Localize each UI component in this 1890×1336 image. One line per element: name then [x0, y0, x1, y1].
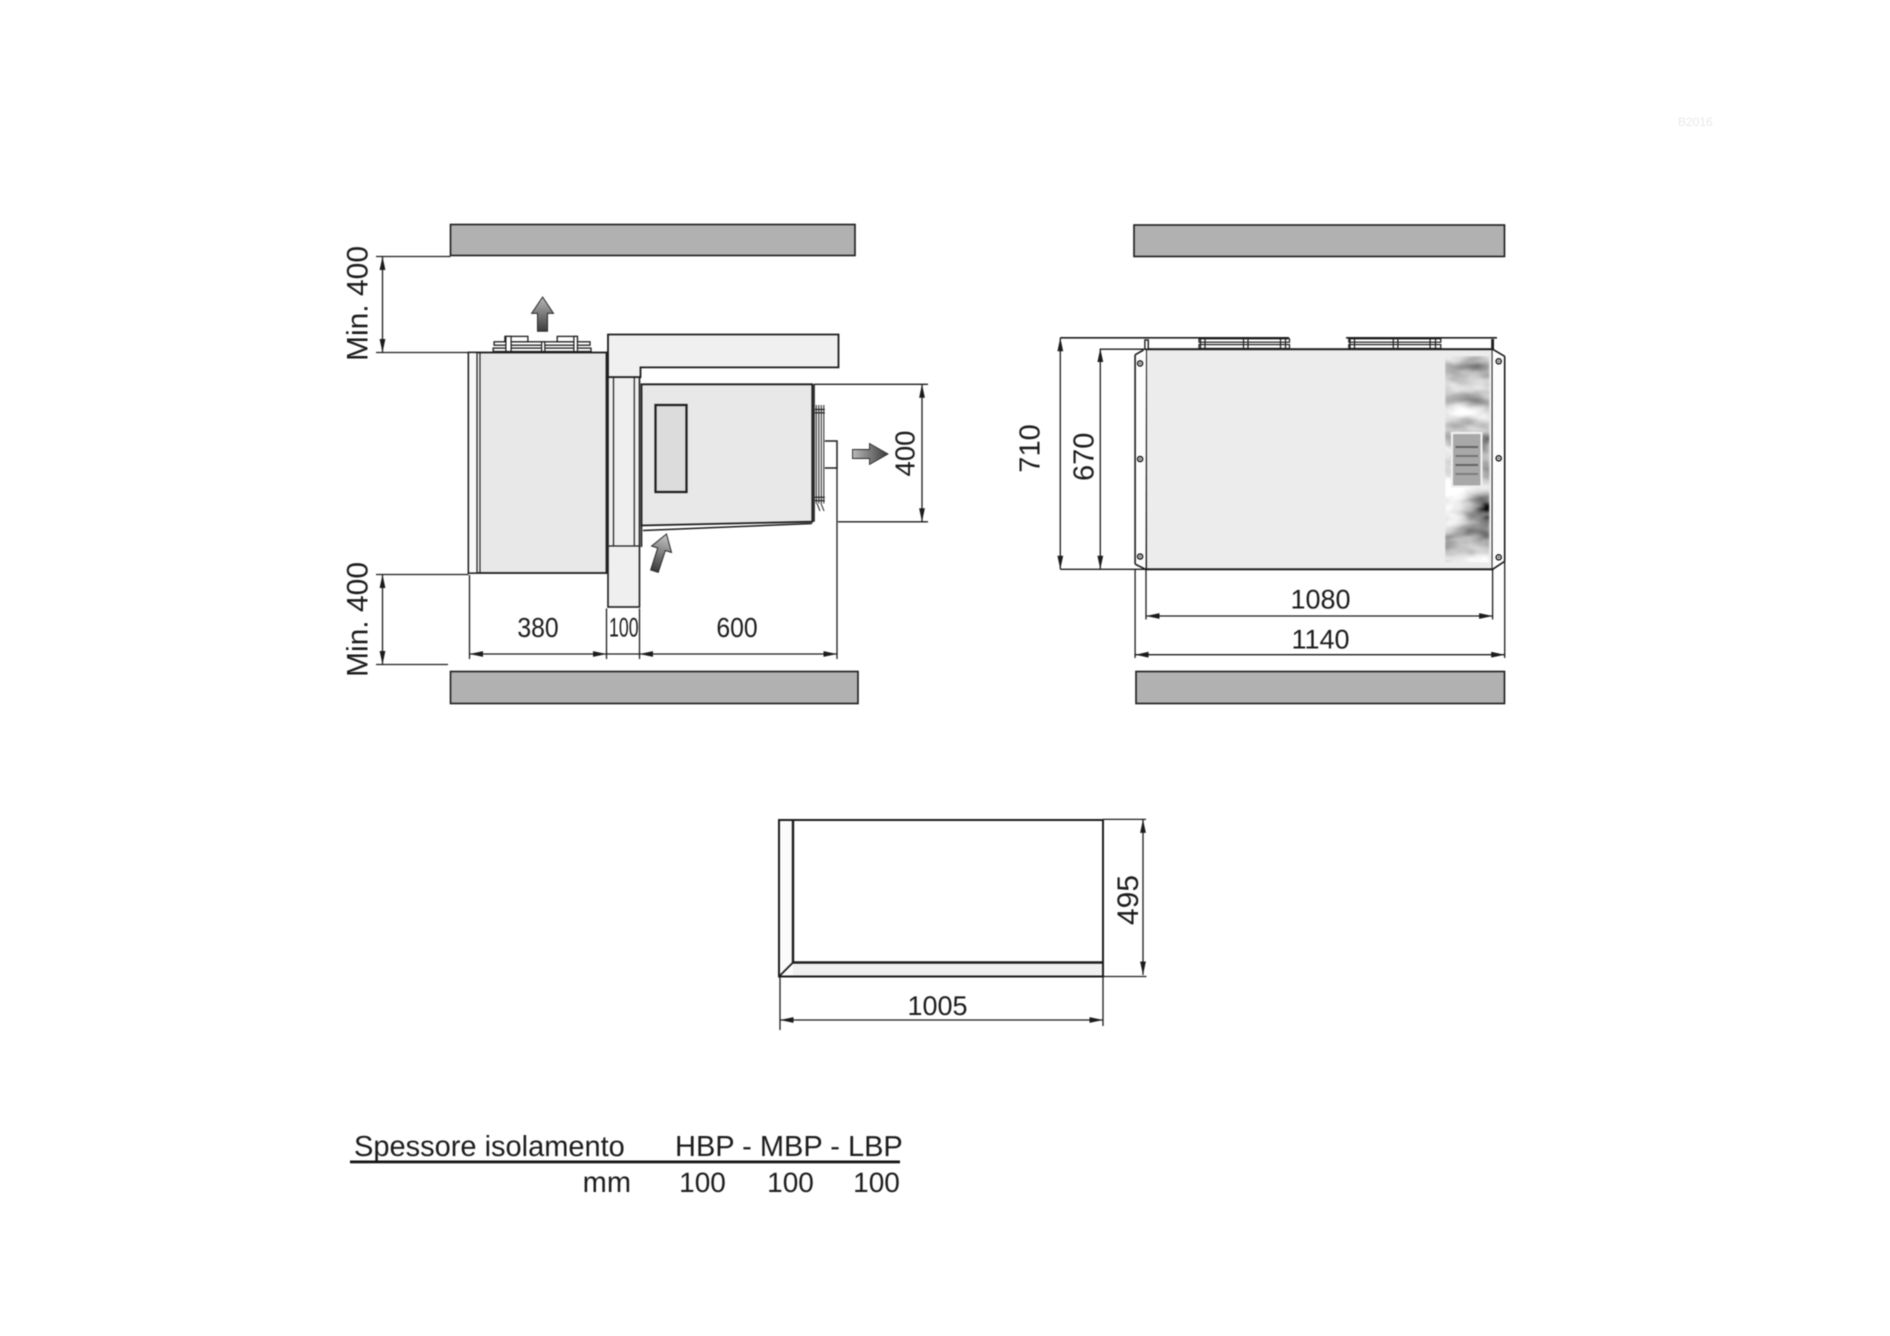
svg-text:710: 710	[1015, 424, 1047, 472]
svg-text:495: 495	[1112, 875, 1145, 925]
svg-text:B2016: B2016	[1678, 115, 1713, 129]
svg-text:100: 100	[679, 1167, 726, 1198]
svg-text:Min. 400: Min. 400	[342, 562, 375, 677]
svg-text:400: 400	[890, 431, 921, 477]
svg-text:100: 100	[767, 1167, 814, 1198]
svg-text:100: 100	[853, 1167, 900, 1198]
svg-text:1005: 1005	[907, 991, 967, 1021]
svg-text:mm: mm	[583, 1167, 631, 1199]
svg-text:Spessore isolamento: Spessore isolamento	[354, 1131, 625, 1163]
svg-text:380: 380	[517, 612, 558, 644]
svg-text:1080: 1080	[1290, 584, 1350, 614]
svg-text:100: 100	[609, 613, 639, 642]
svg-text:670: 670	[1069, 433, 1101, 481]
svg-text:HBP - MBP - LBP: HBP - MBP - LBP	[675, 1131, 903, 1163]
svg-text:600: 600	[716, 612, 757, 644]
svg-text:1140: 1140	[1291, 624, 1349, 654]
svg-text:Min. 400: Min. 400	[342, 246, 375, 361]
